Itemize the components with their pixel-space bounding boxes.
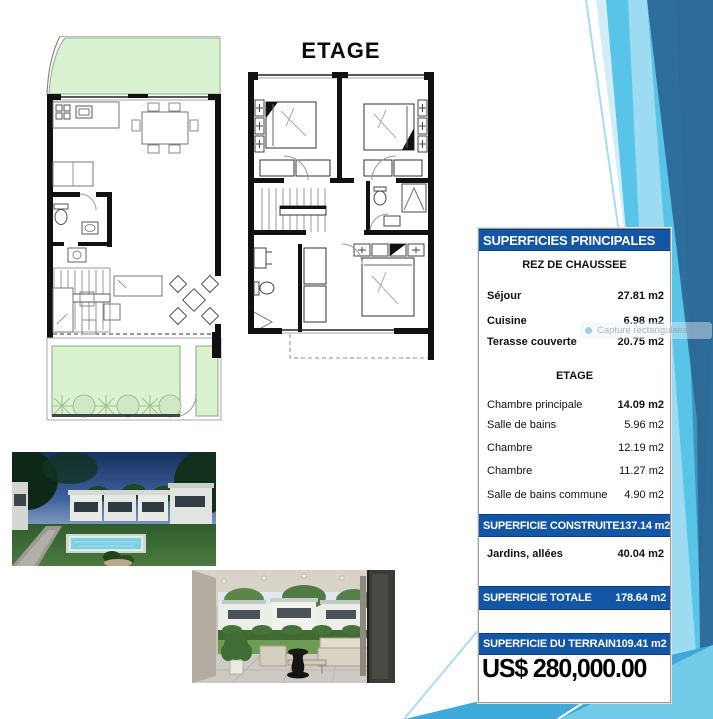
section-title-etage: ETAGE [479,370,670,382]
total-terrain-bar: SUPERFICIE DU TERRAIN 109.41 m2 [479,633,670,655]
row-value: 12.19 m2 [618,442,664,454]
row-label: Terasse couverte [485,336,577,348]
section-title-rez-de-chaussee: REZ DE CHAUSSEE [479,259,670,271]
superficies-table: SUPERFICIES PRINCIPALES REZ DE CHAUSSEE … [478,228,671,703]
row-value: 40.04 m2 [618,548,664,560]
slide: ETAGE [0,0,713,719]
row-value: 14.09 m2 [618,399,664,411]
row-label: Jardins, allées [485,548,563,560]
upper-floor-plan [246,66,436,362]
total-construite-bar: SUPERFICIE CONSTRUITE 137.14 m2 [479,514,670,537]
row-label: Chambre [485,442,532,454]
row-value: 11.27 m2 [619,465,664,477]
row-label: Séjour [485,290,521,302]
etage-title: ETAGE [246,38,436,64]
terrace-render-photo [192,570,395,683]
ground-floor-plan [44,36,228,438]
total-value: 178.64 m2 [615,592,666,604]
row-label: Salle de bains [485,419,556,431]
row-salle-de-bains: Salle de bains 5.96 m2 [479,419,670,431]
row-label: Chambre [485,465,532,477]
total-label: SUPERFICIE TOTALE [483,592,592,604]
row-value: 5.96 m2 [624,419,664,431]
row-salle-de-bains-commune: Salle de bains commune 4.90 m2 [479,489,670,501]
exterior-render-photo [12,452,216,566]
row-label: Chambre principale [485,399,582,411]
row-chambre-2: Chambre 11.27 m2 [479,465,670,477]
row-label: Cuisine [485,315,527,327]
table-header-label: SUPERFICIES PRINCIPALES [483,233,655,248]
row-sejour: Séjour 27.81 m2 [479,290,670,302]
total-label: SUPERFICIE DU TERRAIN [483,638,616,650]
total-label: SUPERFICIE CONSTRUITE [483,520,619,532]
row-jardins-allees: Jardins, allées 40.04 m2 [479,548,670,560]
price-label: US$ 280,000.00 [482,653,660,684]
total-value: 109.41 m2 [616,638,667,650]
total-totale-bar: SUPERFICIE TOTALE 178.64 m2 [479,586,670,610]
row-value: 4.90 m2 [624,489,664,501]
row-label: Salle de bains commune [485,489,607,501]
capture-dot-icon [585,327,592,334]
row-value: 27.81 m2 [618,290,664,302]
capture-tooltip-label: Capture rectangulaire [597,325,688,336]
total-value: 137.14 m2 [619,520,670,532]
row-chambre-1: Chambre 12.19 m2 [479,442,670,454]
table-header-bar: SUPERFICIES PRINCIPALES [479,229,670,251]
capture-tooltip: Capture rectangulaire [580,322,712,339]
row-chambre-principale: Chambre principale 14.09 m2 [479,399,670,411]
